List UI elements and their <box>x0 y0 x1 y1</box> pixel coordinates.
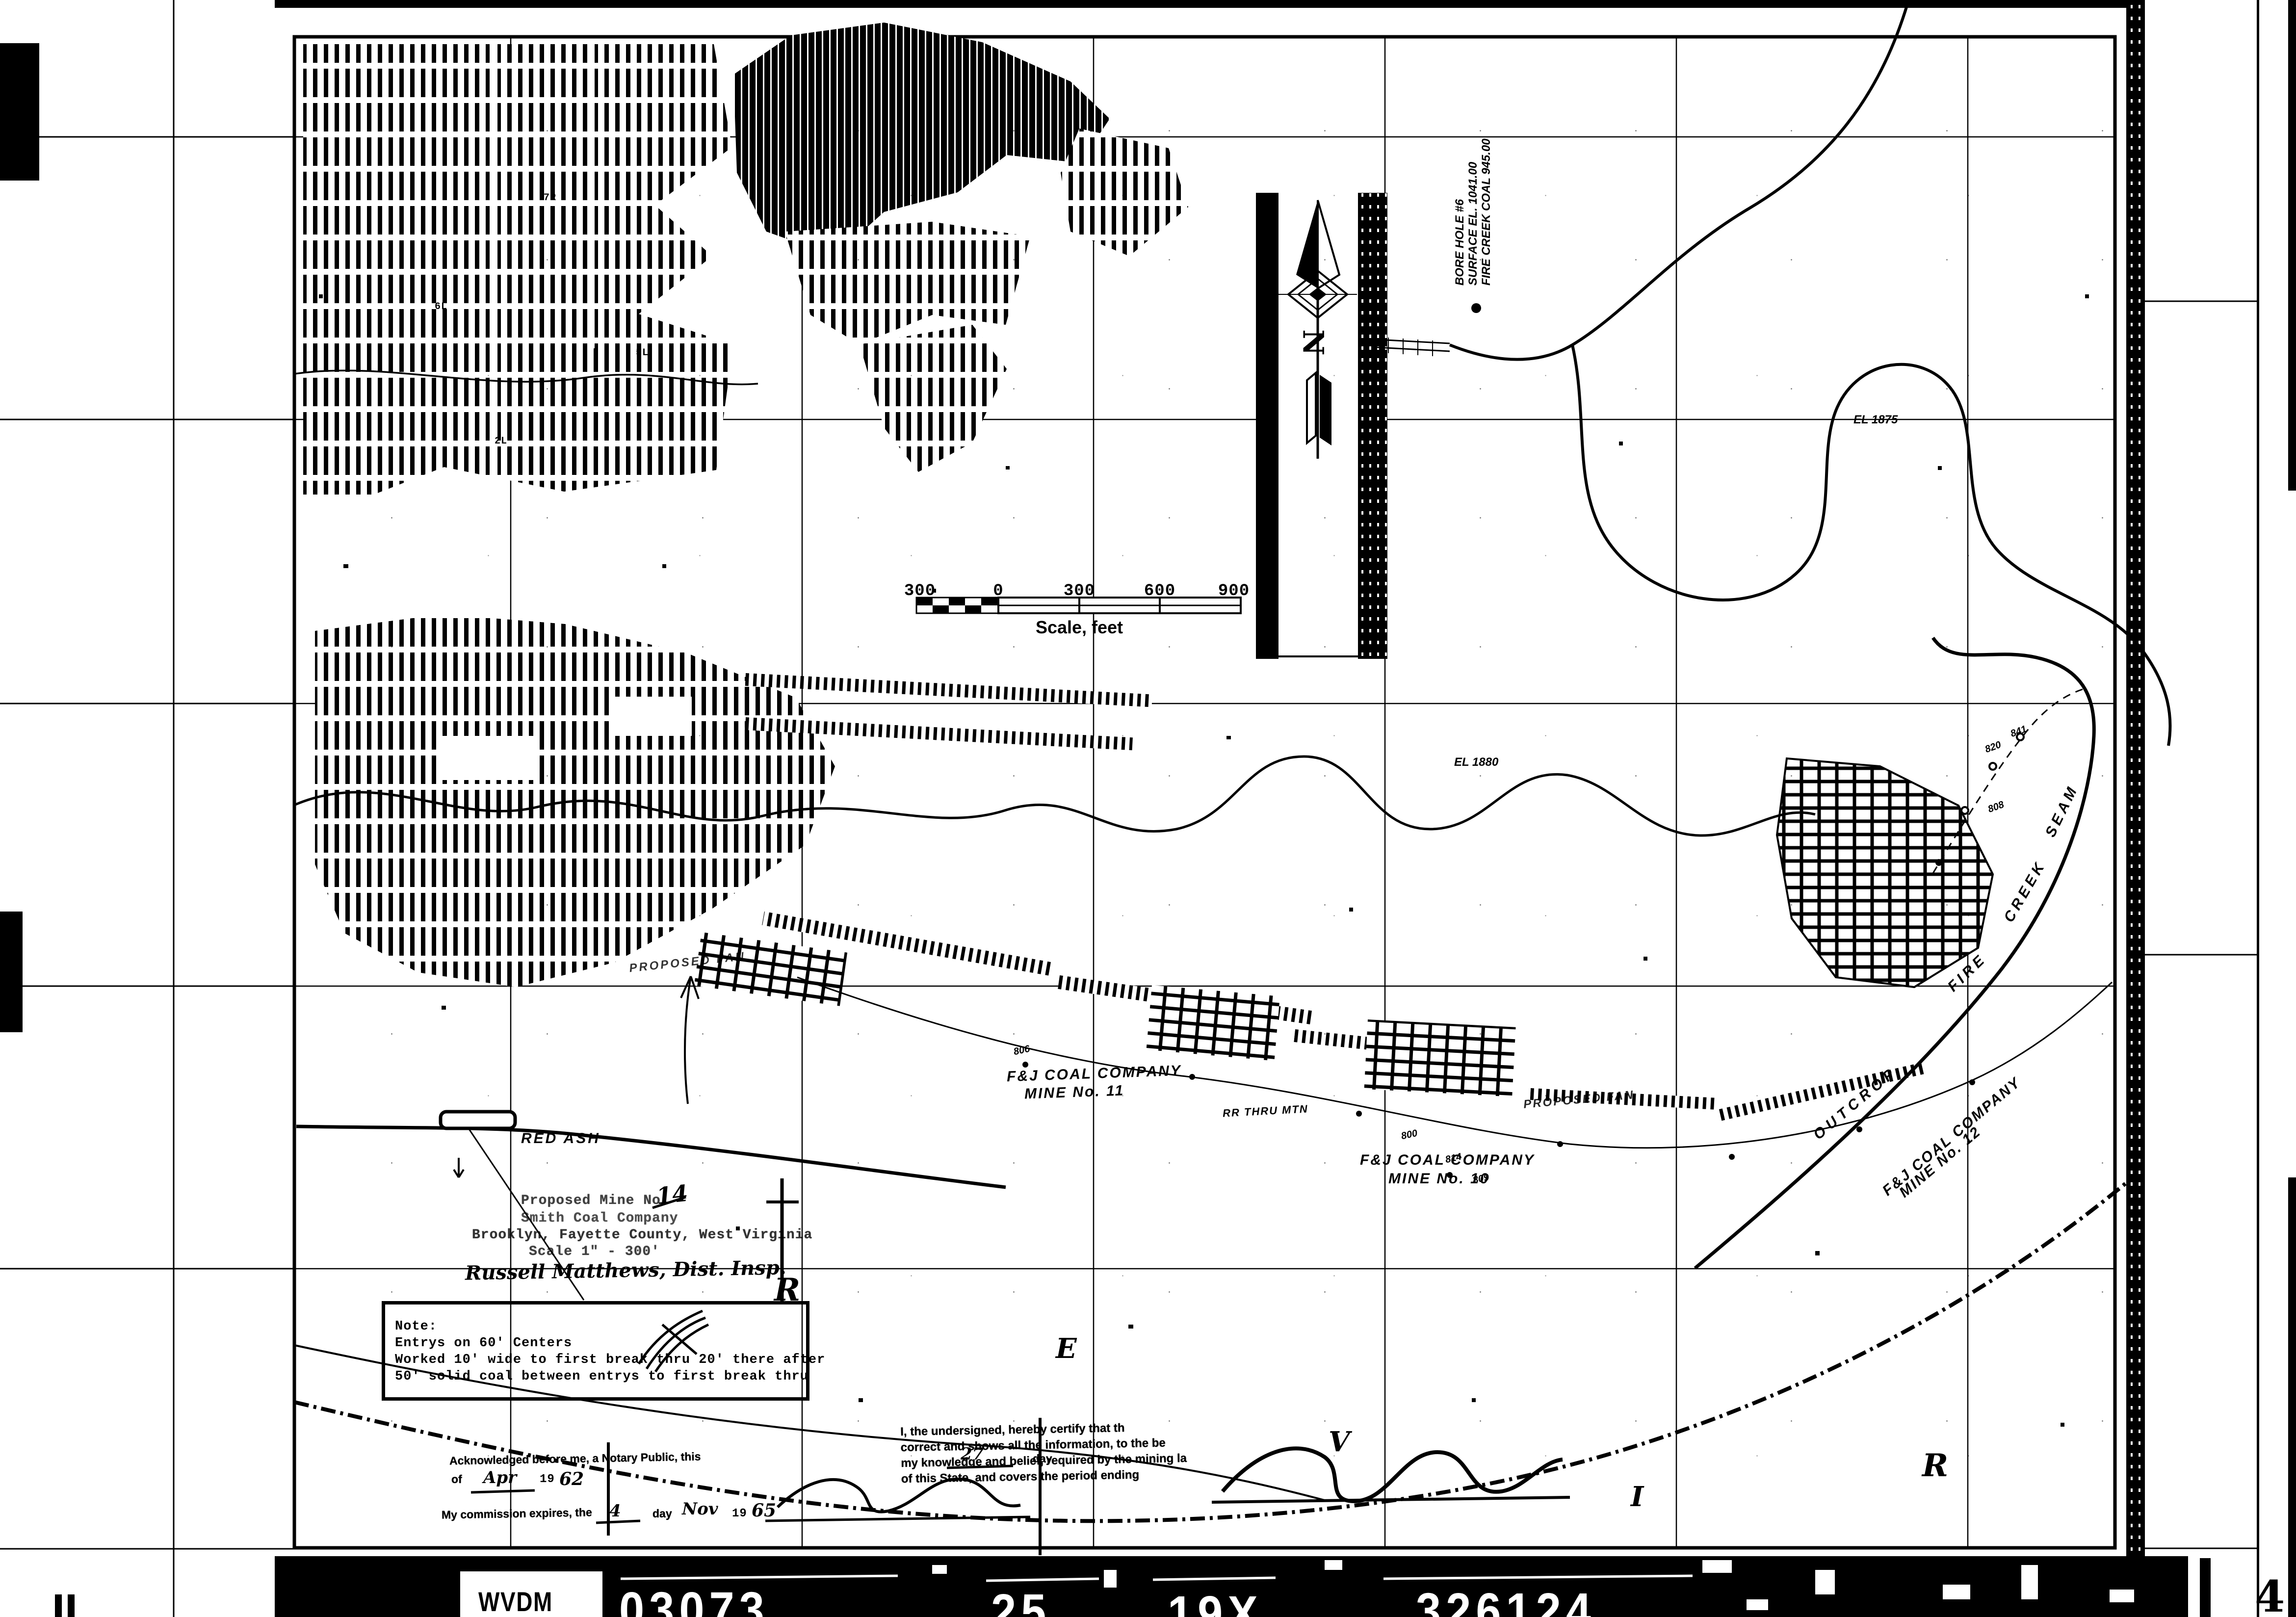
borehole-dot <box>1471 303 1481 313</box>
scale-tick-600: 600 <box>1144 582 1175 600</box>
red-ash-haulage <box>296 1126 1006 1187</box>
scale-tick-300-left: 300 <box>904 582 936 600</box>
borehole-line3: FIRE CREEK COAL 945.00 <box>1480 64 1493 286</box>
borehole-annotation: BORE HOLE #6 SURFACE EL. 1041.00 FIRE CR… <box>1453 64 1493 286</box>
certification-signature <box>1223 1448 1563 1501</box>
title-line1: Proposed Mine No: <box>521 1193 670 1208</box>
red-ash-portal <box>441 1112 515 1177</box>
note-line3: 50' solid coal between entrys to first b… <box>395 1368 806 1385</box>
scale-tick-0: 0 <box>993 582 1003 600</box>
north-arrow-fletch <box>1307 373 1316 443</box>
notary-day-word-1: day <box>1033 1452 1052 1465</box>
mine10-workings <box>1364 1019 1516 1097</box>
entry-tag-2l: 2L <box>495 436 507 447</box>
borehole-line1: BORE HOLE #6 <box>1453 64 1466 286</box>
river-letter-v: V <box>1329 1426 1350 1458</box>
title-line3: Brooklyn, Fayette County, West Virginia <box>472 1227 812 1243</box>
scale-tick-900: 900 <box>1218 582 1250 600</box>
notary-ack-year: 62 <box>559 1469 584 1489</box>
notary-exp-month: Nov <box>682 1499 718 1519</box>
title-line2: Smith Coal Company <box>521 1211 678 1226</box>
entry-tag-6l: 6L <box>435 301 447 313</box>
title-line4: Scale 1" - 300' <box>529 1244 660 1259</box>
north-arrow-strip <box>1256 193 1450 659</box>
entry-tag-7r: 7R <box>544 192 556 204</box>
notary-exp-day: 4 <box>609 1501 621 1521</box>
mine11-number-label: MINE No. 11 <box>1024 1082 1124 1102</box>
notary-exp-year-prefix: 19 <box>732 1507 747 1520</box>
entry-ladders <box>745 673 1926 1121</box>
mine-workings-west <box>315 614 847 1006</box>
note-title: Note: <box>395 1318 806 1335</box>
river-letter-r2: R <box>1922 1447 1948 1484</box>
scale-caption: Scale, feet <box>1036 617 1123 638</box>
frame-number: 4 <box>2255 1571 2285 1617</box>
scanned-mine-map: 300 0 300 600 900 Scale, feet N BORE HOL… <box>0 0 2296 1617</box>
note-line2: Worked 10' wide to first break thru 20' … <box>395 1352 806 1368</box>
notary-day-word-2: day <box>652 1507 672 1520</box>
river-letter-e: E <box>1056 1332 1077 1365</box>
film-strip-code-1: 03073 <box>619 1582 769 1617</box>
notary-exp-line: My commission expires, the <box>442 1506 592 1521</box>
notary-of-word: of <box>451 1473 462 1486</box>
dark-wing-workings <box>733 23 1110 256</box>
north-label: N <box>1297 329 1330 355</box>
elevation-label-1875: EL 1875 <box>1853 413 1898 427</box>
notary-ack-month: Apr <box>483 1468 517 1487</box>
borehole-line2: SURFACE EL. 1041.00 <box>1466 64 1480 286</box>
film-strip-agency: WVDM <box>478 1586 553 1617</box>
note-box: Note: Entrys on 60' Centers Worked 10' w… <box>382 1301 809 1401</box>
elevation-label-1880: EL 1880 <box>1454 756 1498 769</box>
film-strip-code-2: 25 <box>991 1584 1051 1617</box>
title-mine-number: 14 <box>655 1180 689 1209</box>
mine12-workings <box>1777 758 1993 987</box>
flow-arrow <box>681 976 699 1104</box>
film-strip-code-4: 326124 <box>1416 1583 1596 1617</box>
mine11-workings <box>1146 985 1280 1061</box>
note-line1: Entrys on 60' Centers <box>395 1335 806 1352</box>
mine-workings-northwest <box>294 23 1188 495</box>
notary-exp-year: 65 <box>752 1500 776 1521</box>
upper-creek <box>1450 4 1907 360</box>
map-linework <box>0 0 2296 1617</box>
notary-ack-day: 27 <box>961 1444 984 1464</box>
entry-tag-5l: 5L <box>636 347 649 359</box>
red-ash-label: RED ASH <box>521 1130 600 1147</box>
creek-loop <box>1572 345 2170 746</box>
river-letter-i: I <box>1631 1481 1644 1513</box>
scale-tick-300: 300 <box>1064 582 1095 600</box>
film-strip-code-3: 19X <box>1168 1586 1263 1617</box>
notary-ack-year-prefix: 19 <box>540 1473 555 1486</box>
